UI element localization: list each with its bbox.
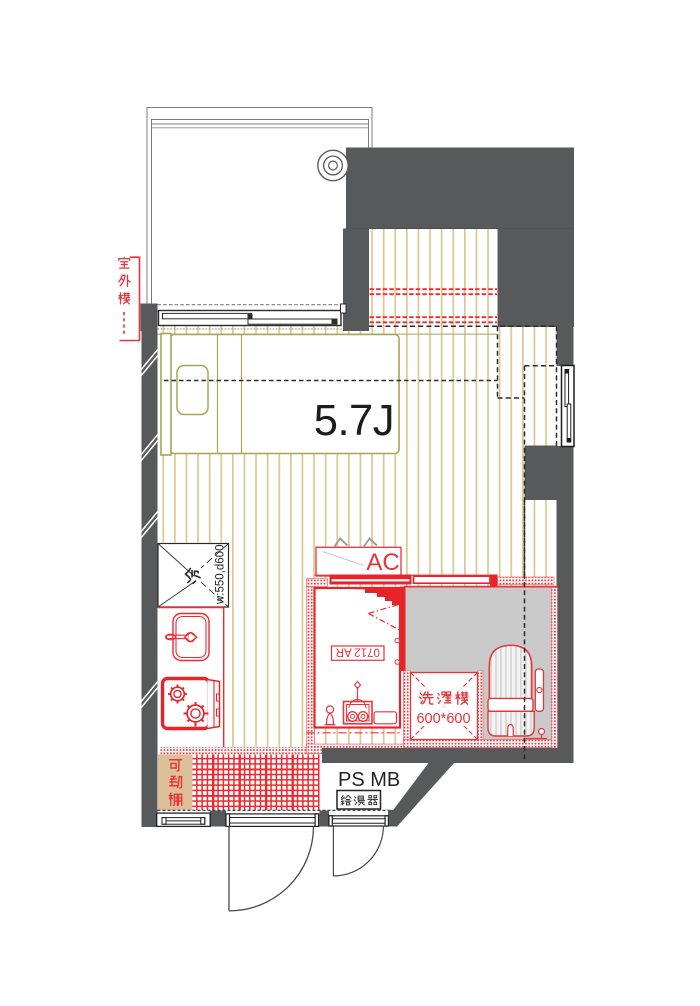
- svg-text:PS MB: PS MB: [338, 769, 400, 791]
- svg-text:w:550,d600: w:550,d600: [215, 545, 227, 605]
- svg-text:0712 AR: 0712 AR: [336, 646, 380, 658]
- svg-text:600*600: 600*600: [416, 711, 470, 727]
- svg-text:AC: AC: [366, 549, 399, 576]
- svg-text:5.7J: 5.7J: [314, 397, 394, 445]
